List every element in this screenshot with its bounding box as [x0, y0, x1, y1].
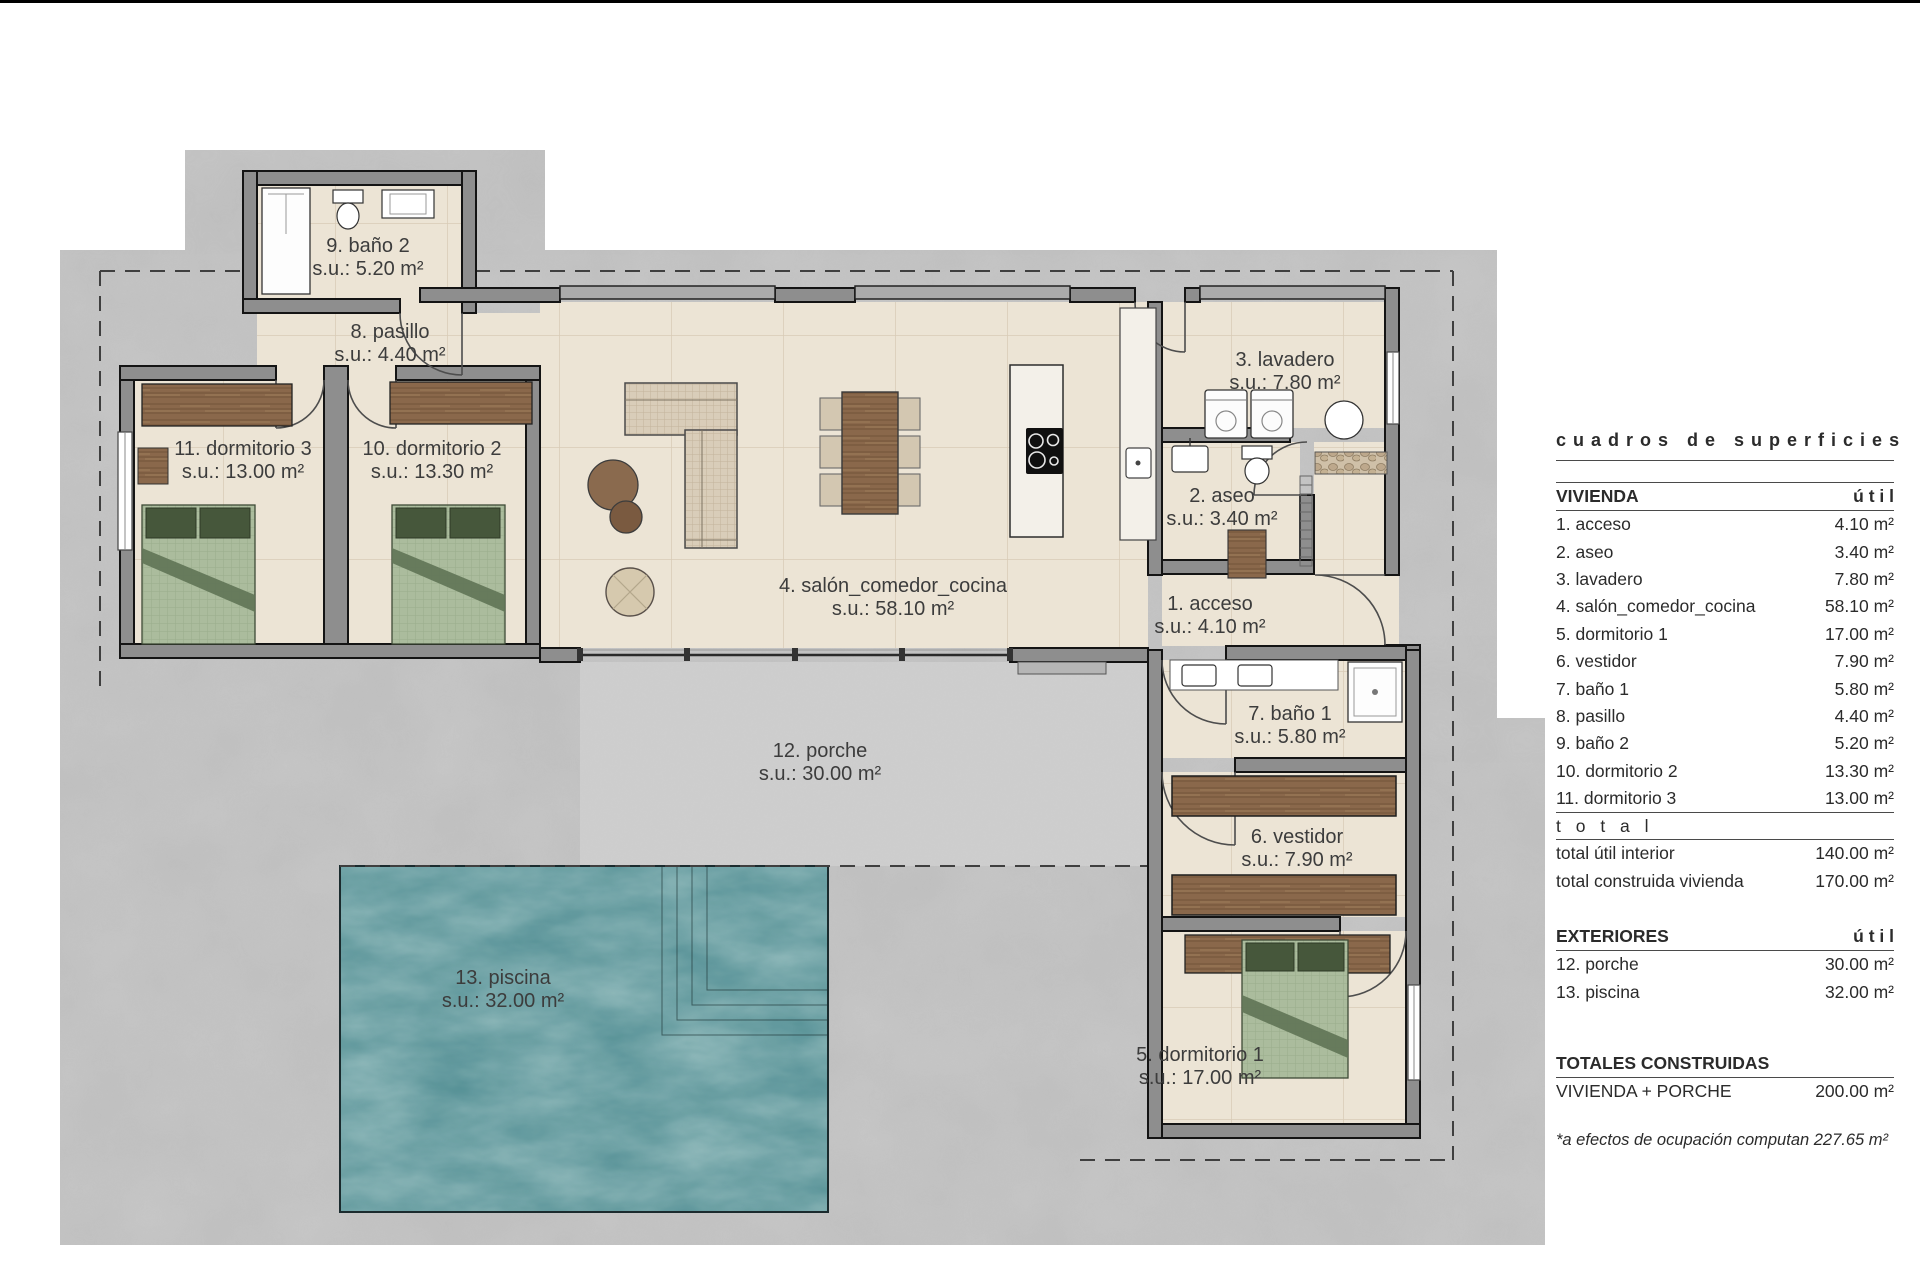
row-label: 3. lavadero	[1556, 569, 1643, 590]
footnote: *a efectos de ocupación computan 227.65 …	[1556, 1131, 1894, 1150]
room-area-vestidor: s.u.: 7.90 m²	[1241, 849, 1352, 871]
room-label-banyo2: 9. baño 2	[326, 235, 409, 257]
kitchen-island	[1010, 365, 1063, 537]
room-label-acceso: 1. acceso	[1167, 593, 1253, 615]
floor-plan-page: 9. baño 2 s.u.: 5.20 m² 8. pasillo s.u.:…	[0, 0, 1920, 1280]
totales-section: TOTALES CONSTRUIDAS VIVIENDA + PORCHE200…	[1556, 1050, 1894, 1105]
totales-header-row: TOTALES CONSTRUIDAS	[1556, 1050, 1894, 1078]
room-label-aseo: 2. aseo	[1189, 485, 1255, 507]
room-label-piscina: 13. piscina	[455, 967, 551, 989]
room-area-pasillo: s.u.: 4.40 m²	[334, 344, 445, 366]
vivienda-header-row: VIVIENDA ú t i l	[1556, 483, 1894, 511]
swimming-pool	[340, 866, 828, 1212]
total-label: t o t a l	[1556, 816, 1654, 837]
row-value: 4.10 m²	[1835, 514, 1894, 535]
exteriores-col-header: ú t i l	[1853, 926, 1894, 947]
table-row: 8. pasillo4.40 m²	[1556, 703, 1894, 730]
table-row: 7. baño 15.80 m²	[1556, 675, 1894, 702]
row-label: 1. acceso	[1556, 514, 1631, 535]
room-label-dorm1: 5. dormitorio 1	[1136, 1044, 1264, 1066]
coffee-table-small	[610, 501, 642, 533]
room-area-dorm1: s.u.: 17.00 m²	[1139, 1067, 1262, 1089]
room-area-dorm2: s.u.: 13.30 m²	[371, 461, 494, 483]
page-top-border	[0, 0, 1920, 3]
row-label: total construida vivienda	[1556, 871, 1744, 892]
room-area-banyo2: s.u.: 5.20 m²	[312, 258, 423, 280]
row-value: 200.00 m²	[1815, 1081, 1894, 1102]
table-row: total útil interior140.00 m²	[1556, 840, 1894, 867]
room-label-dorm2: 10. dormitorio 2	[363, 438, 502, 460]
table-row: 2. aseo3.40 m²	[1556, 538, 1894, 565]
room-label-pasillo: 8. pasillo	[351, 321, 430, 343]
vivienda-col-header: ú t i l	[1853, 486, 1894, 507]
table-row: 3. lavadero7.80 m²	[1556, 566, 1894, 593]
row-value: 5.20 m²	[1835, 733, 1894, 754]
room-area-acceso: s.u.: 4.10 m²	[1154, 616, 1265, 638]
exteriores-header-row: EXTERIORES ú t i l	[1556, 923, 1894, 951]
row-label: 12. porche	[1556, 954, 1639, 975]
room-area-banyo1: s.u.: 5.80 m²	[1234, 726, 1345, 748]
kitchen-counter	[1120, 308, 1156, 540]
surface-table-panel: cuadros de superficies VIVIENDA ú t i l …	[1556, 430, 1894, 1150]
row-value: 7.90 m²	[1835, 651, 1894, 672]
room-label-vestidor: 6. vestidor	[1251, 826, 1344, 848]
table-row: 11. dormitorio 313.00 m²	[1556, 785, 1894, 812]
room-label-dorm3: 11. dormitorio 3	[174, 438, 311, 460]
row-value: 13.00 m²	[1825, 788, 1894, 809]
table-row: 4. salón_comedor_cocina58.10 m²	[1556, 593, 1894, 620]
row-label: 9. baño 2	[1556, 733, 1629, 754]
row-label: total útil interior	[1556, 843, 1675, 864]
table-title: cuadros de superficies	[1556, 430, 1894, 461]
vivienda-section: VIVIENDA ú t i l 1. acceso4.10 m² 2. ase…	[1556, 482, 1894, 895]
room-area-porche: s.u.: 30.00 m²	[759, 763, 882, 785]
table-row: 12. porche30.00 m²	[1556, 951, 1894, 978]
room-label-salon: 4. salón_comedor_cocina	[779, 575, 1008, 597]
row-label: 8. pasillo	[1556, 706, 1625, 727]
room-area-lavadero: s.u.: 7.80 m²	[1229, 372, 1340, 394]
row-value: 5.80 m²	[1835, 679, 1894, 700]
row-value: 7.80 m²	[1835, 569, 1894, 590]
row-value: 13.30 m²	[1825, 761, 1894, 782]
room-label-porche: 12. porche	[773, 740, 868, 762]
row-label: 13. piscina	[1556, 982, 1640, 1003]
row-label: 2. aseo	[1556, 542, 1613, 563]
table-row: 13. piscina32.00 m²	[1556, 978, 1894, 1005]
room-label-lavadero: 3. lavadero	[1236, 349, 1335, 371]
table-row: VIVIENDA + PORCHE200.00 m²	[1556, 1078, 1894, 1105]
row-value: 4.40 m²	[1835, 706, 1894, 727]
room-area-piscina: s.u.: 32.00 m²	[442, 990, 565, 1012]
row-value: 140.00 m²	[1815, 843, 1894, 864]
table-row: 10. dormitorio 213.30 m²	[1556, 758, 1894, 785]
row-label: 11. dormitorio 3	[1556, 788, 1676, 809]
table-row: 5. dormitorio 117.00 m²	[1556, 621, 1894, 648]
exteriores-section: EXTERIORES ú t i l 12. porche30.00 m² 13…	[1556, 923, 1894, 1006]
room-area-salon: s.u.: 58.10 m²	[832, 598, 955, 620]
table-row: total construida vivienda170.00 m²	[1556, 868, 1894, 895]
row-label: 4. salón_comedor_cocina	[1556, 596, 1755, 617]
table-row: 1. acceso4.10 m²	[1556, 511, 1894, 538]
row-value: 17.00 m²	[1825, 624, 1894, 645]
row-value: 30.00 m²	[1825, 954, 1894, 975]
dining-set	[820, 392, 920, 514]
row-label: 6. vestidor	[1556, 651, 1637, 672]
exteriores-header: EXTERIORES	[1556, 926, 1669, 947]
totales-header: TOTALES CONSTRUIDAS	[1556, 1053, 1769, 1074]
table-row: 6. vestidor7.90 m²	[1556, 648, 1894, 675]
row-value: 170.00 m²	[1815, 871, 1894, 892]
row-label: 10. dormitorio 2	[1556, 761, 1678, 782]
row-label: 7. baño 1	[1556, 679, 1629, 700]
room-area-dorm3: s.u.: 13.00 m²	[182, 461, 305, 483]
room-area-aseo: s.u.: 3.40 m²	[1166, 508, 1277, 530]
row-value: 3.40 m²	[1835, 542, 1894, 563]
row-value: 32.00 m²	[1825, 982, 1894, 1003]
row-value: 58.10 m²	[1825, 596, 1894, 617]
row-label: 5. dormitorio 1	[1556, 624, 1668, 645]
vivienda-header: VIVIENDA	[1556, 486, 1639, 507]
row-label: VIVIENDA + PORCHE	[1556, 1081, 1732, 1102]
room-label-banyo1: 7. baño 1	[1248, 703, 1331, 725]
total-divider-row: t o t a l	[1556, 812, 1894, 840]
table-row: 9. baño 25.20 m²	[1556, 730, 1894, 757]
pouf	[606, 568, 654, 616]
